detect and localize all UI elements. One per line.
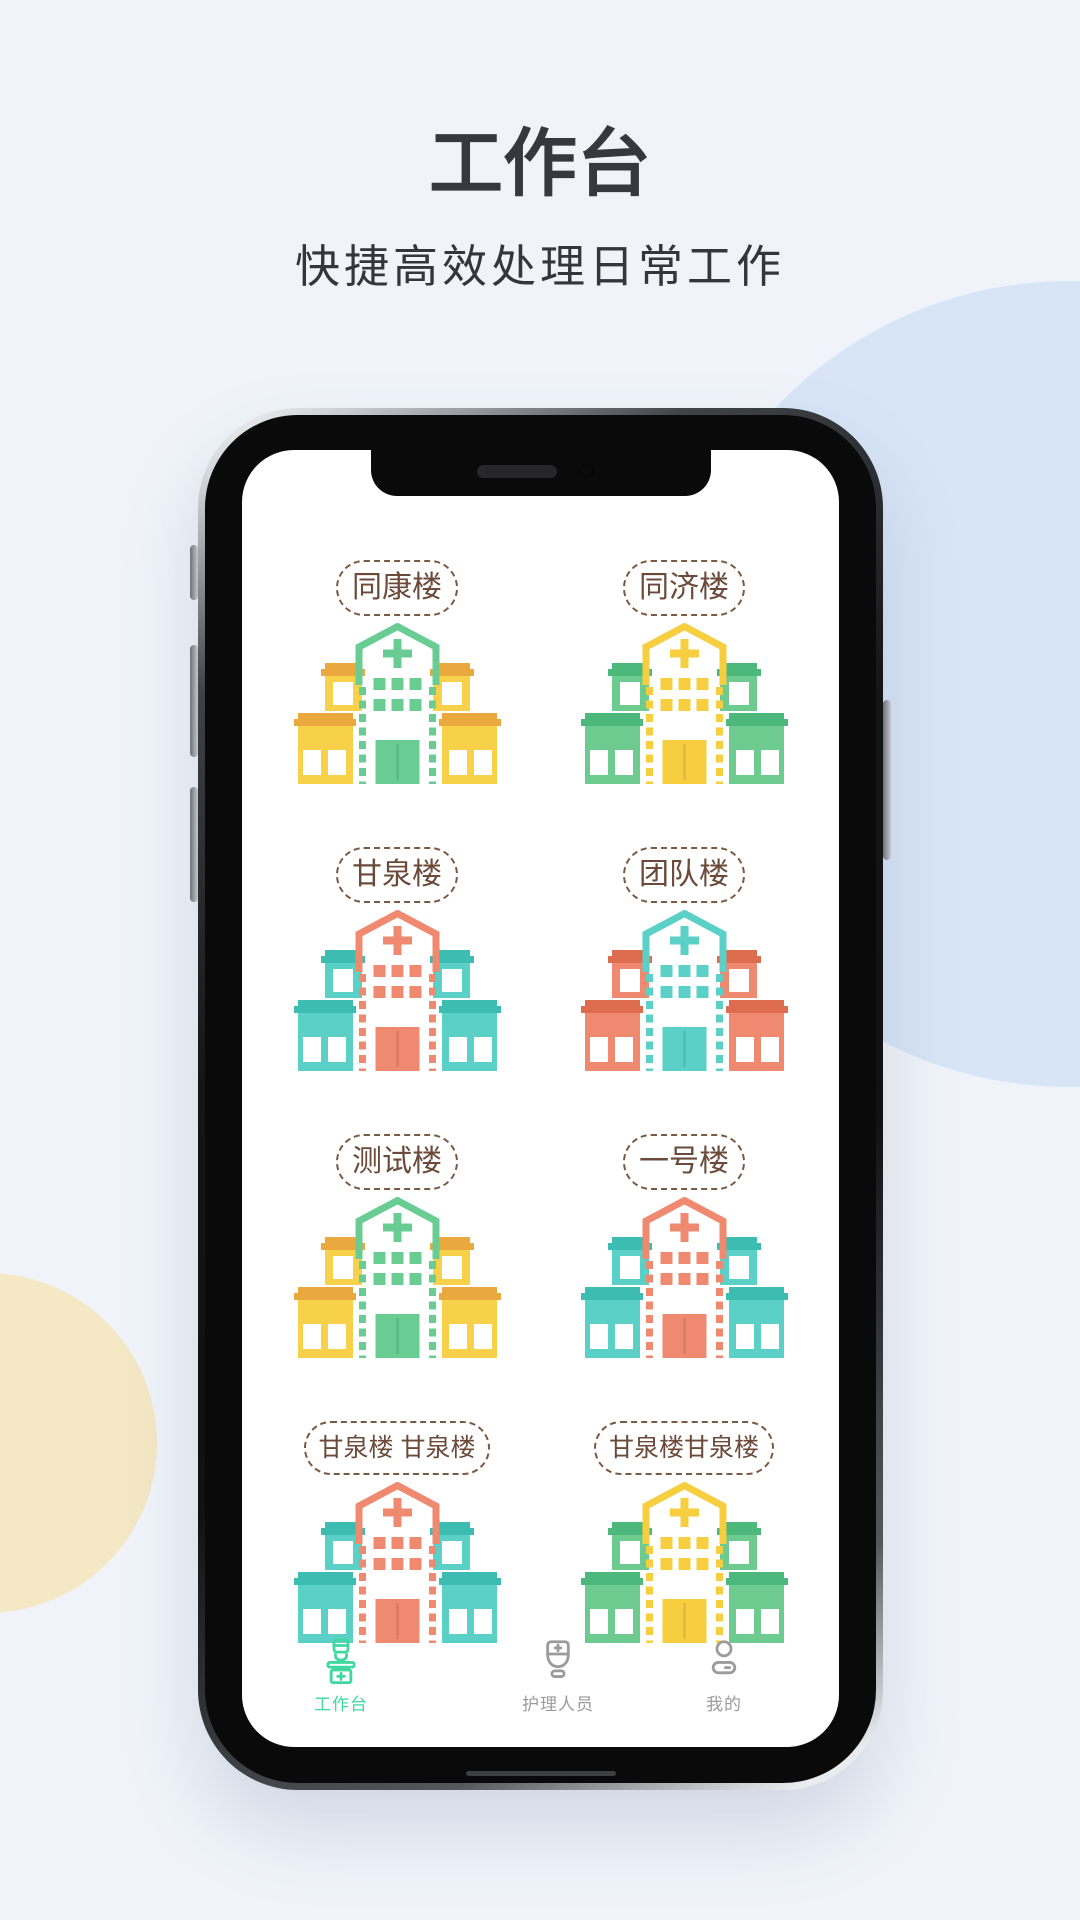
hospital-building-graphic	[292, 1197, 503, 1358]
building-card[interactable]: 一号楼	[549, 1134, 819, 1358]
building-card[interactable]: 团队楼	[549, 847, 819, 1071]
hospital-building-illustration	[292, 623, 503, 784]
hospital-building-graphic	[579, 1482, 790, 1643]
hospital-building-graphic	[579, 1197, 790, 1358]
tab-nursing-staff[interactable]: 护理人员	[522, 1638, 594, 1715]
tab-label: 我的	[706, 1690, 742, 1715]
tab-workbench[interactable]: 工作台	[314, 1638, 368, 1715]
building-label-pill: 甘泉楼	[336, 847, 458, 903]
page-title: 工作台	[0, 104, 1080, 211]
building-label-pill: 一号楼	[623, 1134, 745, 1190]
phone-screen: 同康楼	[242, 450, 839, 1747]
front-camera	[579, 463, 594, 478]
building-label-pill: 同康楼	[336, 560, 458, 616]
building-label-pill: 团队楼	[623, 847, 745, 903]
hospital-building-graphic	[292, 1482, 503, 1643]
building-card[interactable]: 同济楼	[549, 560, 819, 784]
building-card[interactable]: 甘泉楼甘泉楼	[549, 1421, 819, 1643]
phone-frame: 同康楼	[198, 408, 883, 1790]
user-icon	[705, 1638, 743, 1685]
tab-label: 护理人员	[522, 1690, 594, 1715]
speaker-slot	[477, 465, 557, 478]
hospital-building-illustration	[579, 1197, 790, 1358]
home-indicator	[466, 1771, 616, 1776]
power-button	[883, 700, 891, 860]
phone-notch	[371, 450, 711, 496]
hospital-building-illustration	[292, 910, 503, 1071]
nurse-icon	[539, 1638, 577, 1685]
building-card[interactable]: 甘泉楼	[262, 847, 532, 1071]
building-card[interactable]: 甘泉楼 甘泉楼	[262, 1421, 532, 1643]
hospital-building-graphic	[579, 623, 790, 784]
hospital-building-illustration	[292, 1482, 503, 1643]
building-label-pill: 甘泉楼 甘泉楼	[304, 1421, 491, 1475]
page-subtitle: 快捷高效处理日常工作	[0, 230, 1080, 295]
building-label-pill: 测试楼	[336, 1134, 458, 1190]
hospital-building-graphic	[292, 910, 503, 1071]
workbench-icon	[322, 1638, 360, 1685]
hospital-building-illustration	[579, 623, 790, 784]
hospital-building-illustration	[292, 1197, 503, 1358]
building-card[interactable]: 同康楼	[262, 560, 532, 784]
hospital-building-illustration	[579, 910, 790, 1071]
building-card[interactable]: 测试楼	[262, 1134, 532, 1358]
building-label-pill: 同济楼	[623, 560, 745, 616]
hospital-building-graphic	[292, 623, 503, 784]
volume-up-button	[190, 645, 198, 757]
mute-switch	[190, 545, 198, 600]
promo-page: 工作台 快捷高效处理日常工作 同康楼	[0, 0, 1080, 1920]
building-label-pill: 甘泉楼甘泉楼	[594, 1421, 774, 1475]
hospital-building-graphic	[579, 910, 790, 1071]
decorative-circle-beige	[0, 1273, 157, 1613]
tab-label: 工作台	[314, 1690, 368, 1715]
tab-mine[interactable]: 我的	[705, 1638, 743, 1715]
hospital-building-illustration	[579, 1482, 790, 1643]
volume-down-button	[190, 787, 198, 902]
